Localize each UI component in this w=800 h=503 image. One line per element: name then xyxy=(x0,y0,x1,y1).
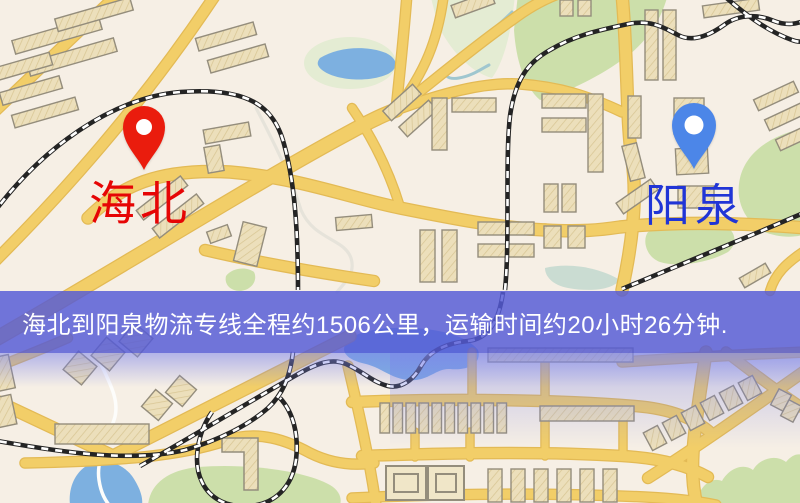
origin-pin[interactable] xyxy=(118,104,170,172)
map-pin-icon xyxy=(118,104,170,172)
origin-label: 海北 xyxy=(89,182,191,229)
destination-pin[interactable] xyxy=(667,101,721,171)
logistics-map-screenshot: 海北 阳泉 海北到阳泉物流专线全程约1506公里，运输时间约20小时26分钟. xyxy=(0,0,800,503)
map-pin-icon xyxy=(667,101,721,171)
map-canvas xyxy=(0,0,800,503)
route-info-banner: 海北到阳泉物流专线全程约1506公里，运输时间约20小时26分钟. xyxy=(0,291,800,353)
route-info-text: 海北到阳泉物流专线全程约1506公里，运输时间约20小时26分钟. xyxy=(0,305,728,340)
destination-label: 阳泉 xyxy=(645,184,745,229)
